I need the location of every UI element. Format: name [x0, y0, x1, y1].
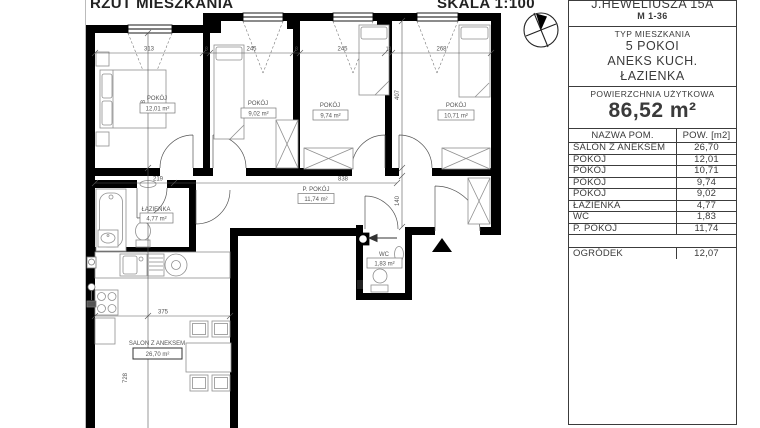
svg-text:POKÓJ: POKÓJ — [446, 102, 466, 109]
type-line: ŁAZIENKA — [569, 69, 736, 84]
svg-text:18: 18 — [386, 47, 392, 53]
svg-text:9,02 m²: 9,02 m² — [248, 112, 268, 118]
type-line: ANEKS KUCH. — [569, 54, 736, 69]
svg-text:313: 313 — [144, 47, 155, 53]
table-row: POKÓJ 10,71 — [569, 165, 736, 177]
svg-text:9,74 m²: 9,74 m² — [320, 114, 340, 120]
svg-text:4,77 m²: 4,77 m² — [146, 217, 166, 223]
area-label: POWIERZCHNIA UŻYTKOWA — [569, 87, 736, 99]
table-row: POKÓJ 12,01 — [569, 154, 736, 166]
type-line: 5 POKOI — [569, 39, 736, 54]
washing-machine — [357, 233, 369, 245]
svg-text:POKÓJ: POKÓJ — [147, 95, 167, 102]
kitchen-range — [95, 290, 118, 315]
svg-text:838: 838 — [338, 177, 349, 183]
info-panel: J.HEWELIUSZA 15A M 1-36 TYP MIESZKANIA 5… — [568, 0, 737, 428]
entrance-triangle — [432, 238, 452, 252]
svg-text:26,70 m²: 26,70 m² — [146, 352, 170, 358]
svg-text:POKÓJ: POKÓJ — [248, 100, 268, 107]
cabinet — [95, 318, 115, 344]
room-label-pokoj-2: POKÓJ 9,02 m² — [241, 100, 276, 118]
floor-plan-drawing: 313 8 245 8 245 18 268 368 728 407 140 2… — [0, 0, 565, 428]
rooms-table: NAZWA POM. POW. [m2] SALON Z ANEKSEM 26,… — [568, 128, 737, 260]
table-row: P. POKÓJ 11,74 — [569, 223, 736, 235]
svg-text:12,01 m²: 12,01 m² — [146, 107, 170, 113]
address: J.HEWELIUSZA 15A — [569, 0, 736, 11]
table-row: ŁAZIENKA 4,77 — [569, 200, 736, 212]
svg-text:140: 140 — [395, 195, 401, 206]
svg-text:375: 375 — [158, 310, 169, 316]
room-label-pokoj-3: POKÓJ 9,74 m² — [313, 102, 348, 120]
table-row: POKÓJ 9,74 — [569, 177, 736, 189]
dining-set — [186, 321, 231, 391]
svg-text:8: 8 — [205, 47, 208, 53]
svg-text:POKÓJ: POKÓJ — [320, 102, 340, 109]
room-label-pokoj-4: POKÓJ 10,71 m² — [438, 102, 474, 120]
wardrobe — [468, 178, 490, 224]
kitchen-counter — [95, 252, 230, 278]
svg-text:728: 728 — [123, 372, 129, 383]
usable-area-box: POWIERZCHNIA UŻYTKOWA 86,52 m² — [568, 86, 737, 129]
svg-text:SALON Z ANEKSEM: SALON Z ANEKSEM — [129, 341, 185, 347]
table-row-garden: OGRÓDEK 12,07 — [569, 247, 736, 260]
bed-single — [459, 25, 490, 97]
svg-text:WC: WC — [379, 252, 390, 258]
table-row: WC 1,83 — [569, 211, 736, 223]
svg-text:407: 407 — [395, 89, 401, 100]
type-label: TYP MIESZKANIA — [569, 27, 736, 39]
unit-number: M 1-36 — [569, 11, 736, 21]
table-row: POKÓJ 9,02 — [569, 188, 736, 200]
room-label-salon: SALON Z ANEKSEM 26,70 m² — [129, 341, 185, 359]
svg-text:P. POKÓJ: P. POKÓJ — [303, 186, 330, 193]
bed-single — [214, 45, 244, 139]
area-value: 86,52 m² — [569, 99, 736, 123]
address-box: J.HEWELIUSZA 15A M 1-36 — [568, 0, 737, 27]
svg-text:268: 268 — [436, 47, 447, 53]
svg-text:1,83 m²: 1,83 m² — [374, 262, 394, 268]
compass-icon — [524, 13, 558, 47]
washbasin — [98, 230, 118, 247]
svg-text:245: 245 — [246, 47, 257, 53]
svg-text:10,71 m²: 10,71 m² — [444, 114, 468, 120]
room-label-lazienka: ŁAZIENKA 4,77 m² — [140, 207, 173, 223]
wardrobe — [276, 120, 298, 168]
wardrobe — [442, 148, 490, 169]
svg-text:ŁAZIENKA: ŁAZIENKA — [141, 207, 170, 213]
svg-text:219: 219 — [153, 177, 164, 183]
notes-box — [568, 259, 737, 425]
wc-toilet — [371, 269, 388, 292]
table-header: NAZWA POM. POW. [m2] — [569, 128, 736, 142]
column-header-name: NAZWA POM. — [569, 129, 677, 142]
entrance-arrow — [369, 235, 397, 242]
table-row: SALON Z ANEKSEM 26,70 — [569, 142, 736, 154]
svg-text:8: 8 — [295, 47, 298, 53]
room-label-ppokoj: P. POKÓJ 11,74 m² — [298, 186, 334, 204]
table-spacer-row — [569, 234, 736, 247]
floor-plan-sheet: { "header": { "title": "RZUT MIESZKANIA"… — [0, 0, 760, 428]
bed-single — [359, 25, 389, 95]
wardrobe — [304, 148, 353, 169]
column-header-area: POW. [m2] — [677, 129, 736, 142]
apartment-type-box: TYP MIESZKANIA 5 POKOI ANEKS KUCH. ŁAZIE… — [568, 26, 737, 87]
svg-text:245: 245 — [337, 47, 348, 53]
svg-text:11,74 m²: 11,74 m² — [304, 197, 327, 203]
